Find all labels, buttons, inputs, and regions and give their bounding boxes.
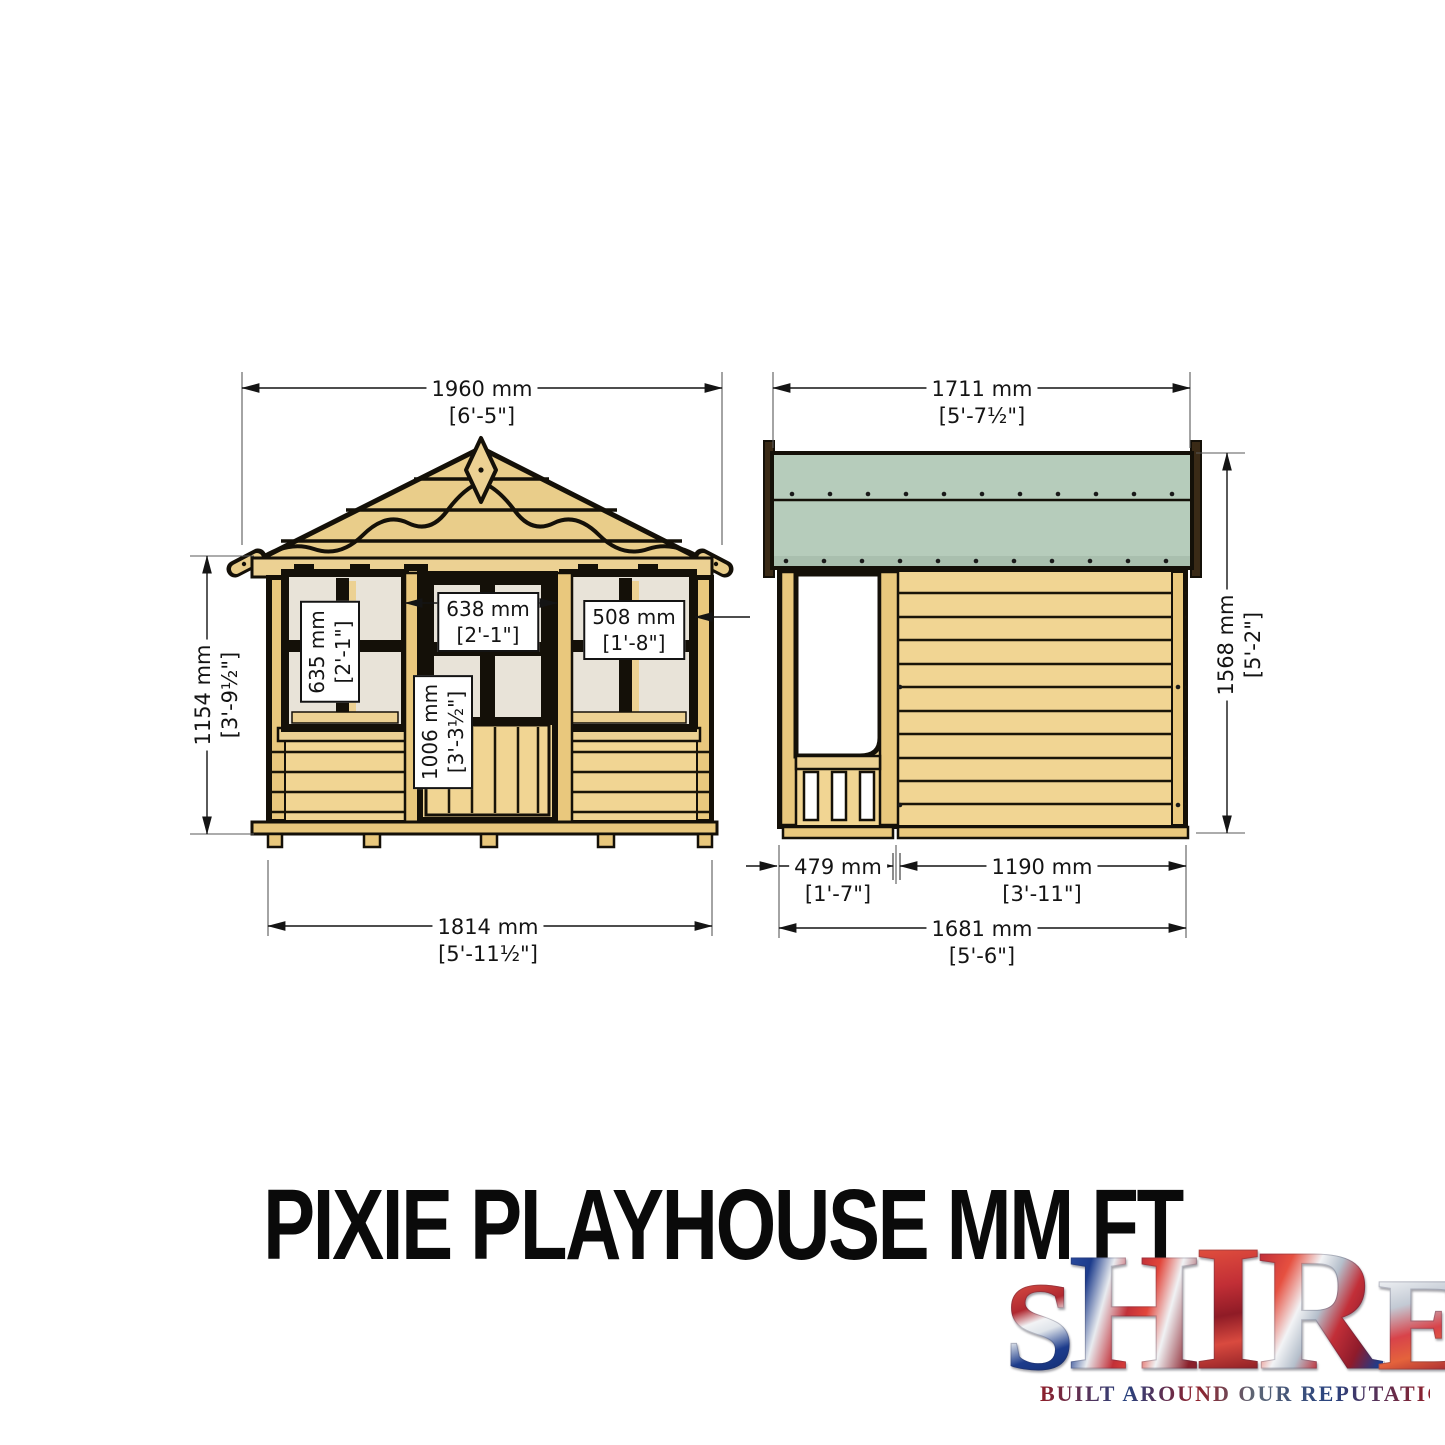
side-porch-depth-dimension: 479 mm [1'-7"] <box>789 854 887 908</box>
side-roof <box>772 453 1192 568</box>
shire-logo-letters: S H I R E <box>1040 1240 1430 1375</box>
side-wall-depth-dimension: 1190 mm [3'-11"] <box>986 854 1097 908</box>
porch-opening <box>796 574 880 756</box>
front-roof <box>235 438 725 569</box>
front-base <box>252 822 717 847</box>
window-right-dimension-box: 508 mm [1'-8"] <box>583 600 685 660</box>
logo-letter-e: E <box>1377 1275 1445 1375</box>
door-width-dimension-box: 638 mm [2'-1"] <box>437 592 539 652</box>
window-left-dimension-box: 635 mm [2'-1"] <box>300 601 360 703</box>
front-width-bottom-dimension: 1814 mm [5'-11½"] <box>432 914 543 968</box>
logo-letter-s: S <box>1004 1281 1074 1376</box>
door-height-dimension-box: 1006 mm [3'-3½"] <box>413 675 473 789</box>
logo-letter-i: I <box>1193 1240 1263 1375</box>
side-base <box>783 827 1188 838</box>
balustrade-slats <box>804 772 874 820</box>
logo-letter-r: R <box>1257 1245 1383 1376</box>
side-height-right-dimension: 1568 mm [5'-2"] <box>1213 589 1267 700</box>
front-height-left-dimension: 1154 mm [3'-9½"] <box>190 639 244 750</box>
shire-logo: S H I R E BUILT AROUND OUR REPUTATION <box>1040 1240 1430 1407</box>
balustrade-rail <box>796 756 880 769</box>
side-width-top-dimension: 1711 mm [5'-7½"] <box>926 376 1037 430</box>
front-width-top-dimension: 1960 mm [6'-5"] <box>426 376 537 430</box>
technical-drawing-page: 1960 mm [6'-5"] 1154 mm [3'-9½"] 1814 mm… <box>0 0 1445 1445</box>
logo-letter-h: H <box>1068 1249 1199 1375</box>
side-wall <box>779 570 1186 827</box>
side-width-bottom-dimension: 1681 mm [5'-6"] <box>926 916 1037 970</box>
side-corner-post <box>1172 572 1184 825</box>
